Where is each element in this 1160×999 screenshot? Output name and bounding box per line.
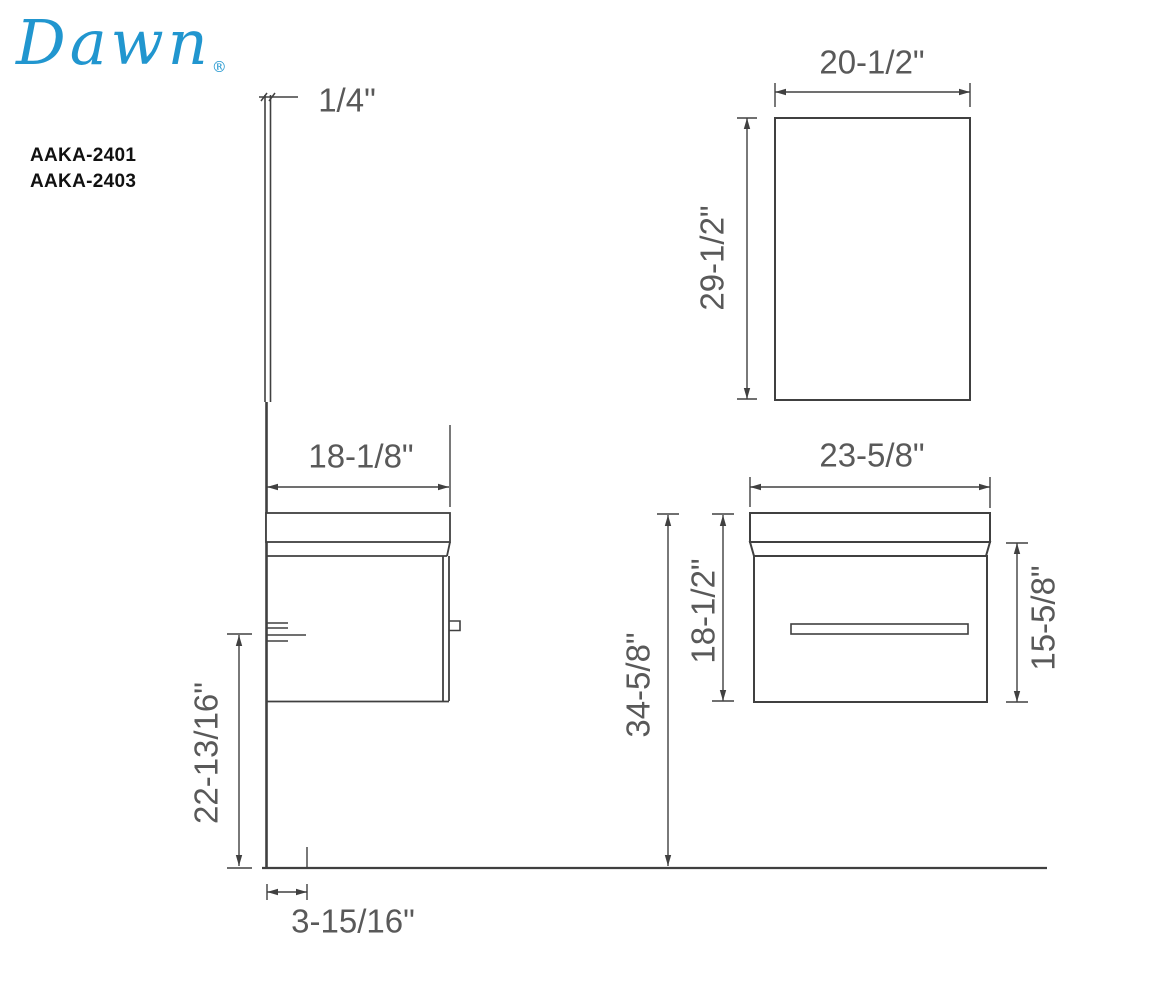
dim-label-mirror-thickness: 1/4" — [318, 84, 376, 117]
dim-label-mirror-height: 29-1/2" — [696, 205, 729, 310]
vanity-front-view — [750, 513, 990, 702]
dim-label-floor-to-cabinet: 22-13/16" — [190, 682, 223, 824]
vanity-side-view — [266, 513, 460, 702]
model-number: AAKA-2401 — [30, 143, 136, 169]
model-number: AAKA-2403 — [30, 169, 136, 195]
dim-label-vanity-depth: 18-1/8" — [308, 440, 413, 473]
dim-overall-height — [657, 514, 679, 866]
registered-trademark-icon: ® — [212, 58, 227, 76]
dim-label-overall-height: 34-5/8" — [622, 632, 655, 737]
dim-mirror-width — [775, 83, 970, 107]
mounting-cleat — [266, 623, 306, 641]
brand-logo: Dawn® — [16, 6, 227, 79]
handle-side-profile — [449, 621, 460, 631]
dim-label-cabinet-side-height: 15-5/8" — [1027, 565, 1060, 670]
drawer-handle — [791, 624, 968, 634]
dim-label-counter-to-bottom: 18-1/2" — [687, 558, 720, 663]
dim-label-mirror-width: 20-1/2" — [819, 46, 924, 79]
dim-wall-offset — [267, 847, 307, 900]
dim-vanity-width — [750, 477, 990, 508]
drawing-linework — [0, 0, 1160, 999]
technical-drawing-canvas: Dawn® AAKA-2401 AAKA-2403 1/4" 20-1/2" 2… — [0, 0, 1160, 999]
mirror-front-view — [775, 118, 970, 400]
dim-label-wall-offset: 3-15/16" — [291, 905, 415, 938]
brand-logo-text: Dawn — [16, 6, 212, 79]
dim-mirror-height — [737, 118, 757, 399]
dim-label-vanity-width: 23-5/8" — [819, 439, 924, 472]
mirror-side-view — [265, 95, 271, 402]
model-number-list: AAKA-2401 AAKA-2403 — [30, 143, 136, 195]
dim-floor-to-cabinet — [227, 634, 252, 868]
